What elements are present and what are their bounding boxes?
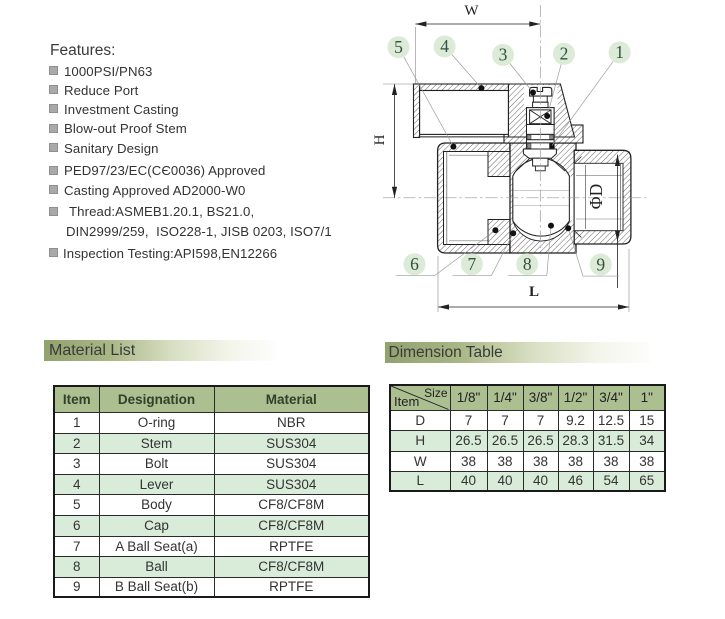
svg-text:2: 2 xyxy=(560,44,569,64)
svg-text:4: 4 xyxy=(440,36,449,56)
svg-text:8: 8 xyxy=(523,254,532,274)
svg-text:ΦD: ΦD xyxy=(586,184,606,209)
svg-text:3: 3 xyxy=(499,45,508,65)
svg-text:5: 5 xyxy=(394,37,403,57)
svg-text:9: 9 xyxy=(596,254,605,274)
svg-text:7: 7 xyxy=(468,254,477,274)
svg-text:1: 1 xyxy=(615,42,624,62)
svg-text:L: L xyxy=(529,284,539,300)
svg-text:W: W xyxy=(464,3,479,19)
svg-text:H: H xyxy=(372,134,388,145)
svg-text:6: 6 xyxy=(410,254,419,274)
